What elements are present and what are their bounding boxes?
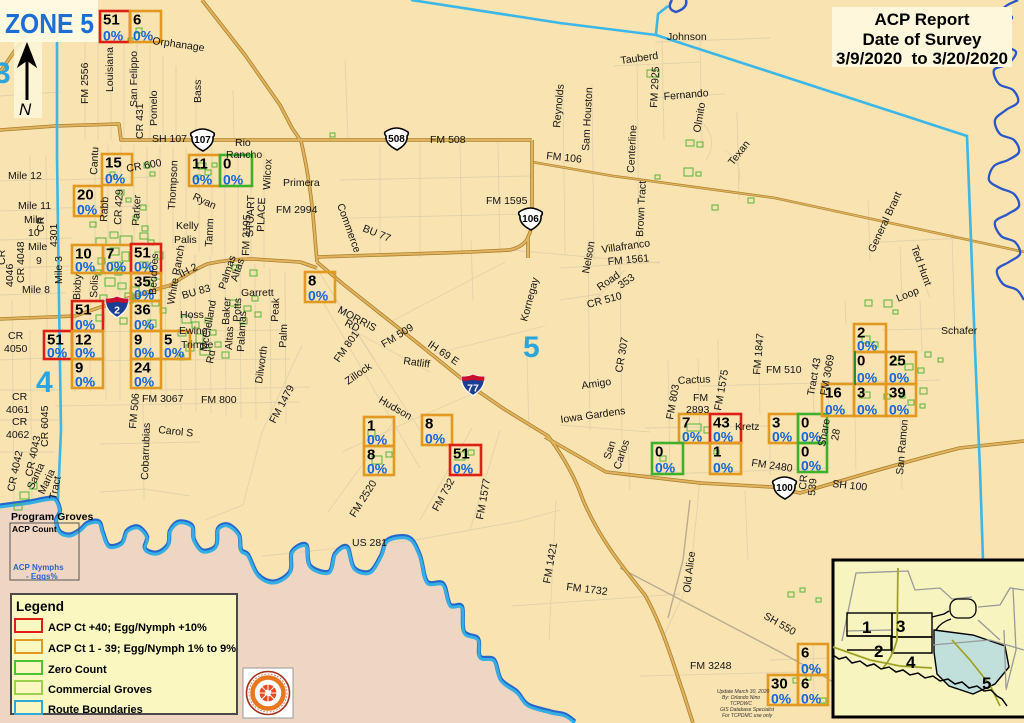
svg-text:4062: 4062 [6, 429, 30, 441]
svg-text:2893: 2893 [686, 404, 710, 416]
svg-text:Cantu: Cantu [88, 146, 101, 175]
svg-text:For TCPDMC use only: For TCPDMC use only [722, 713, 773, 719]
svg-text:Rio: Rio [235, 137, 251, 149]
svg-text:51: 51 [103, 12, 120, 29]
svg-text:FM 508: FM 508 [430, 134, 466, 146]
svg-text:100: 100 [776, 483, 793, 494]
svg-text:N: N [19, 100, 32, 119]
svg-text:FM 800: FM 800 [201, 394, 237, 406]
svg-text:ACP Report: ACP Report [874, 10, 969, 29]
svg-text:5: 5 [523, 331, 540, 364]
svg-text:CR 429: CR 429 [112, 189, 126, 225]
svg-text:CR 4048: CR 4048 [15, 241, 27, 283]
svg-text:0%: 0% [771, 691, 792, 707]
svg-text:0%: 0% [105, 171, 126, 187]
svg-text:39: 39 [889, 385, 906, 402]
svg-text:0%: 0% [308, 288, 329, 304]
svg-text:ACP Nymphs: ACP Nymphs [13, 563, 64, 572]
svg-text:2: 2 [114, 305, 120, 317]
svg-text:0%: 0% [713, 460, 734, 476]
svg-text:77: 77 [467, 383, 479, 395]
svg-text:Palis: Palis [174, 234, 197, 246]
svg-text:0%: 0% [655, 460, 676, 476]
svg-text:Palm: Palm [277, 323, 290, 348]
svg-text:0%: 0% [801, 691, 822, 707]
svg-text:Kretz: Kretz [735, 421, 760, 433]
svg-text:0%: 0% [106, 259, 127, 275]
svg-text:ACP Ct +40; Egg/Nymph +10%: ACP Ct +40; Egg/Nymph +10% [48, 622, 207, 634]
svg-text:0%: 0% [682, 429, 703, 445]
svg-text:Mile 12: Mile 12 [8, 170, 42, 182]
svg-text:US 281: US 281 [352, 537, 387, 549]
svg-text:25: 25 [889, 353, 906, 370]
svg-text:Rabb: Rabb [98, 196, 111, 222]
svg-text:CR 431: CR 431 [134, 103, 146, 139]
svg-text:Cactus: Cactus [678, 373, 711, 387]
svg-text:ZONE 5: ZONE 5 [5, 8, 94, 39]
svg-text:SH 107: SH 107 [152, 133, 187, 145]
svg-text:Johnson: Johnson [667, 31, 707, 43]
svg-text:1: 1 [862, 618, 871, 637]
svg-text:4: 4 [36, 366, 53, 399]
svg-text:6: 6 [133, 12, 141, 29]
svg-text:28: 28 [829, 428, 843, 442]
svg-text:ACP Ct 1 - 39; Egg/Nymph 1% to: ACP Ct 1 - 39; Egg/Nymph 1% to 9% [48, 643, 236, 655]
svg-text:0%: 0% [223, 172, 244, 188]
svg-text:0%: 0% [772, 429, 793, 445]
svg-text:0%: 0% [47, 345, 68, 361]
svg-text:Zero Count: Zero Count [48, 664, 107, 676]
svg-text:- Eggs%: - Eggs% [26, 572, 58, 581]
svg-text:Schafer: Schafer [941, 325, 978, 337]
svg-text:FM 3067: FM 3067 [142, 393, 184, 405]
svg-text:Altas: Altas [223, 326, 236, 350]
svg-text:Program Groves: Program Groves [11, 511, 93, 523]
svg-text:Beddoes: Beddoes [147, 253, 161, 295]
svg-text:FM 510: FM 510 [766, 364, 802, 376]
svg-text:4: 4 [906, 653, 916, 672]
svg-text:Louisiana: Louisiana [104, 47, 116, 92]
svg-text:Hoss: Hoss [180, 309, 204, 321]
svg-text:FM: FM [693, 392, 708, 404]
svg-text:Route Boundaries: Route Boundaries [48, 704, 143, 716]
svg-text:4046: 4046 [4, 263, 16, 287]
svg-text:3/9/2020 to 3/20/2020: 3/9/2020 to 3/20/2020 [836, 49, 1008, 68]
svg-text:Bass: Bass [192, 80, 204, 103]
svg-text:0%: 0% [857, 402, 878, 418]
svg-text:4050: 4050 [4, 343, 28, 355]
svg-text:0%: 0% [134, 374, 155, 390]
svg-text:3: 3 [0, 57, 11, 90]
svg-text:0: 0 [655, 444, 663, 461]
svg-text:0%: 0% [825, 402, 846, 418]
svg-text:508: 508 [388, 134, 405, 145]
svg-text:11: 11 [192, 156, 208, 173]
svg-text:0%: 0% [77, 202, 98, 218]
svg-text:Rd: Rd [204, 349, 218, 364]
svg-text:0%: 0% [75, 374, 96, 390]
svg-text:FM 2925: FM 2925 [648, 66, 662, 108]
svg-text:0%: 0% [133, 28, 154, 44]
svg-text:Primera: Primera [283, 177, 320, 189]
svg-text:FM 2556: FM 2556 [79, 62, 91, 104]
svg-text:CR: CR [0, 249, 8, 265]
svg-text:4061: 4061 [6, 404, 30, 416]
svg-text:Mile 3: Mile 3 [53, 256, 65, 284]
svg-text:CR: CR [12, 416, 28, 428]
svg-text:4301: 4301 [48, 223, 60, 247]
svg-text:Garrett: Garrett [241, 287, 274, 299]
svg-text:Rancho: Rancho [226, 149, 262, 161]
svg-text:3: 3 [896, 617, 905, 636]
svg-text:Mile: Mile [28, 241, 47, 253]
svg-text:CR: CR [35, 216, 47, 232]
svg-text:6: 6 [801, 645, 809, 662]
svg-text:Pomelo: Pomelo [148, 90, 160, 126]
svg-text:Date of Survey: Date of Survey [862, 30, 982, 49]
svg-text:0%: 0% [192, 172, 213, 188]
svg-text:Mile 11: Mile 11 [18, 200, 51, 212]
svg-text:Legend: Legend [16, 599, 64, 614]
svg-text:107: 107 [194, 135, 211, 146]
svg-text:Mile 8: Mile 8 [22, 284, 50, 296]
svg-text:FM 3248: FM 3248 [690, 660, 732, 672]
svg-text:3: 3 [857, 385, 865, 402]
svg-text:0%: 0% [75, 259, 96, 275]
svg-text:9: 9 [36, 255, 42, 267]
svg-text:FM 2994: FM 2994 [276, 204, 318, 216]
svg-text:0: 0 [857, 353, 865, 370]
svg-text:0%: 0% [801, 458, 822, 474]
svg-text:PLACE: PLACE [255, 197, 268, 232]
svg-text:Cobarrubias: Cobarrubias [139, 423, 153, 481]
svg-text:Peak: Peak [269, 297, 282, 322]
svg-text:0%: 0% [889, 402, 910, 418]
svg-text:Parker: Parker [130, 194, 144, 226]
svg-text:Palamas: Palamas [235, 311, 249, 352]
svg-text:Commercial Groves: Commercial Groves [48, 684, 152, 696]
svg-text:15: 15 [105, 155, 122, 172]
svg-text:2: 2 [874, 642, 883, 661]
svg-text:FM 1595: FM 1595 [486, 195, 528, 207]
svg-text:Bixby: Bixby [71, 273, 84, 300]
svg-text:0%: 0% [425, 431, 446, 447]
svg-text:Kelly: Kelly [176, 220, 200, 232]
svg-text:0%: 0% [103, 28, 124, 44]
svg-text:5: 5 [982, 674, 991, 693]
svg-text:San Felippo: San Felippo [128, 51, 140, 107]
svg-text:106: 106 [522, 214, 539, 225]
svg-text:Tamm: Tamm [203, 218, 216, 247]
svg-text:CR: CR [8, 330, 24, 342]
svg-text:CR: CR [12, 391, 28, 403]
svg-text:FM 3195: FM 3195 [240, 214, 253, 256]
svg-text:Solis: Solis [88, 275, 101, 298]
svg-text:0%: 0% [367, 461, 388, 477]
svg-text:ACP Count: ACP Count [12, 524, 57, 534]
svg-text:539: 539 [806, 478, 819, 497]
svg-text:1: 1 [713, 444, 721, 461]
svg-text:Centerline: Centerline [625, 125, 639, 174]
svg-text:Wilcox: Wilcox [261, 158, 275, 190]
svg-text:0%: 0% [453, 461, 474, 477]
